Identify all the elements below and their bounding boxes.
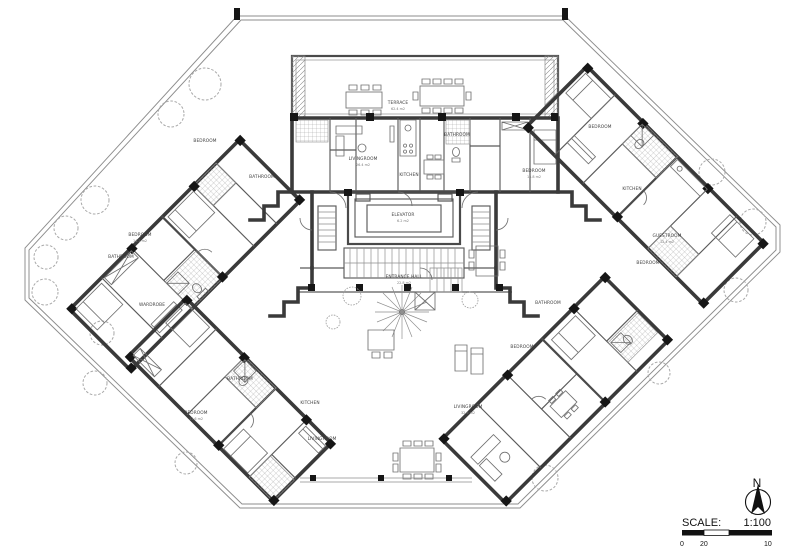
connector-walls xyxy=(250,113,600,316)
room-label: BATHROOM xyxy=(444,132,470,138)
room-area: 26.4 m2 xyxy=(356,163,370,167)
scale-value: 1:100 xyxy=(743,517,771,529)
tree-icon xyxy=(34,245,58,269)
room-area: 32.6 m2 xyxy=(461,411,475,415)
garden-table xyxy=(368,330,394,358)
stair-treads-right xyxy=(472,212,490,242)
room-label: ENTRANCE HALL xyxy=(386,274,423,280)
room-area: 13.6 m2 xyxy=(189,417,203,421)
tree-icon xyxy=(32,279,58,305)
room-label: LIVINGROOM xyxy=(454,404,483,410)
room-label: LIVINGROOM xyxy=(308,436,337,442)
toilet xyxy=(453,148,460,157)
tree-icon xyxy=(158,101,184,127)
room-label: BEDROOM xyxy=(510,344,533,350)
room-area: 62.4 m2 xyxy=(391,107,405,111)
stair-flight-left xyxy=(318,206,336,250)
terrace-planter-left xyxy=(292,56,305,118)
toilet-tank xyxy=(452,158,460,162)
scale-bar-segment-white xyxy=(704,530,729,536)
table xyxy=(346,92,382,108)
door-swing xyxy=(637,191,651,205)
elevator-shaft-outer xyxy=(348,192,460,244)
floor-plan-drawing: TERRACE 62.4 m2 ELEVATOR 6.2 m2 ENTRANCE… xyxy=(0,0,800,560)
room-label: BEDROOM xyxy=(636,260,659,266)
exterior-walls xyxy=(292,118,558,192)
stove-burners xyxy=(403,144,412,153)
coffee-table xyxy=(358,144,366,152)
bush-icon xyxy=(343,287,361,305)
bathroom-tiles xyxy=(225,357,276,408)
kitchen-counter xyxy=(670,160,707,197)
room-label: GUESTROOM xyxy=(653,233,682,239)
core-side-walls xyxy=(312,192,496,268)
room-label: BATHROOM xyxy=(535,300,561,306)
sofa-set xyxy=(336,126,394,156)
room-label: BATHROOM xyxy=(227,376,253,382)
boundary-marker-blocks xyxy=(234,8,568,20)
loungers xyxy=(455,345,483,374)
bush-icon xyxy=(462,292,478,308)
dining-set xyxy=(424,155,444,179)
door-swing xyxy=(243,413,257,427)
room-label: KITCHEN xyxy=(300,400,319,406)
north-label: N xyxy=(753,476,762,490)
room-label: KITCHEN xyxy=(399,172,418,178)
room-label: TERRACE xyxy=(387,100,409,106)
terrace-table-6 xyxy=(346,85,382,115)
shaft-corner-boxes xyxy=(356,194,452,201)
bathroom-tiles xyxy=(446,120,470,144)
room-label: BATHROOM xyxy=(108,254,134,260)
room-label: BEDROOM xyxy=(184,410,207,416)
tree-icon xyxy=(83,371,107,395)
room-area: 22.8 m2 xyxy=(397,281,411,285)
bathroom-tiles xyxy=(165,251,223,309)
scale-label: SCALE: xyxy=(682,517,721,529)
exterior-walls xyxy=(128,298,331,501)
room-area: 15.8 m2 xyxy=(527,175,541,179)
stair-flight-right xyxy=(472,206,490,250)
room-label: LIVINGROOM xyxy=(349,156,378,162)
scale-bar-segment-black2 xyxy=(729,530,772,536)
room-area: 14.2 m2 xyxy=(133,239,147,243)
room-label: ELEVATOR xyxy=(392,212,415,218)
sofa xyxy=(567,136,595,164)
coffee-table xyxy=(498,450,512,464)
door-swing xyxy=(532,392,546,406)
bathroom-tiles xyxy=(296,120,328,142)
room-label: WARDROBE xyxy=(139,302,165,308)
scale-bar-segment-black xyxy=(682,530,704,536)
bathroom-tiles xyxy=(622,123,677,178)
floor-plan-page: TERRACE 62.4 m2 ELEVATOR 6.2 m2 ENTRANCE… xyxy=(0,0,800,560)
room-label: BEDROOM xyxy=(193,138,216,144)
room-label: BEDROOM xyxy=(522,168,545,174)
stair-treads xyxy=(344,248,464,278)
bathroom-tiles xyxy=(193,163,235,205)
tree-icon xyxy=(189,68,221,100)
scale-tick-20: 20 xyxy=(700,541,708,548)
bathroom-tiles xyxy=(249,456,294,501)
palm-tree-icon xyxy=(375,285,429,339)
top-terrace xyxy=(292,56,558,118)
scale-tick-10: 10 xyxy=(764,541,772,548)
stair-treads-left xyxy=(318,212,336,242)
planter-box xyxy=(415,292,435,310)
room-label: BEDROOM xyxy=(588,124,611,130)
room-label: BEDROOM xyxy=(128,232,151,238)
garden-dining-set xyxy=(393,441,441,479)
sink xyxy=(676,165,683,172)
room-area: 6.2 m2 xyxy=(397,219,409,223)
bush-icon xyxy=(326,315,340,329)
scale-tick-0: 0 xyxy=(680,541,684,548)
scale-bar xyxy=(682,530,772,536)
dining-set xyxy=(547,387,581,421)
top-apartments xyxy=(292,118,558,192)
room-label: BATHROOM xyxy=(249,174,275,180)
furniture xyxy=(452,299,639,486)
sink xyxy=(405,125,411,131)
table xyxy=(420,86,464,106)
exterior-walls xyxy=(526,66,764,304)
tree-icon xyxy=(81,186,109,214)
room-area: 12.4 m2 xyxy=(660,240,674,244)
legend: N SCALE: 1:100 0 20 10 xyxy=(680,476,772,548)
terrace-table-8 xyxy=(413,79,471,113)
room-label: KITCHEN xyxy=(622,186,641,192)
